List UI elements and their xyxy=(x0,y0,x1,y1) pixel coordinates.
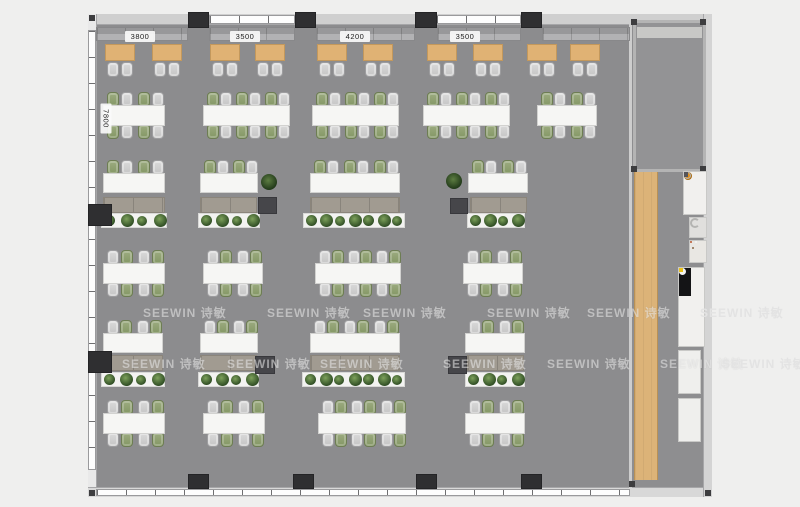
chair xyxy=(257,62,269,77)
floor-plant xyxy=(261,174,277,190)
chair xyxy=(360,282,372,297)
coffee-machine xyxy=(689,240,707,263)
desk-table xyxy=(203,105,290,126)
chair xyxy=(348,282,360,297)
chair xyxy=(489,62,501,77)
chair xyxy=(335,432,347,447)
chair xyxy=(138,124,150,139)
booth-table xyxy=(210,44,240,61)
desk-table xyxy=(318,413,406,434)
chair xyxy=(207,124,219,139)
chair xyxy=(427,124,439,139)
plant xyxy=(363,215,374,226)
chair xyxy=(440,124,452,139)
structural-pillar xyxy=(295,12,316,28)
watermark: SEEWIN 诗敏 xyxy=(487,306,571,320)
desk-table xyxy=(463,263,523,284)
chair xyxy=(322,432,334,447)
basin-icon xyxy=(690,218,700,228)
chair xyxy=(329,124,341,139)
plant xyxy=(154,214,167,227)
desk-table xyxy=(200,333,258,353)
plant xyxy=(378,373,391,386)
plant xyxy=(120,373,133,386)
plant xyxy=(334,375,344,385)
plant xyxy=(305,374,316,385)
chair xyxy=(469,124,481,139)
plant xyxy=(470,215,481,226)
floorplan-canvas: 38003500420035007800SEEWIN 诗敏SEEWIN 诗敏SE… xyxy=(0,0,800,507)
chair xyxy=(379,62,391,77)
chair xyxy=(237,282,249,297)
structural-pillar xyxy=(88,351,112,373)
storage-cabinet xyxy=(310,197,400,213)
chair xyxy=(152,432,164,447)
chair xyxy=(480,282,492,297)
plant xyxy=(232,216,242,226)
plant xyxy=(306,215,317,226)
plant xyxy=(497,375,507,385)
structural-pillar xyxy=(416,474,437,489)
chair xyxy=(485,124,497,139)
plant xyxy=(216,214,229,227)
booth-table xyxy=(570,44,600,61)
plant xyxy=(320,214,333,227)
structural-pillar xyxy=(188,12,209,28)
plant xyxy=(468,374,479,385)
plant xyxy=(483,373,496,386)
plant xyxy=(335,216,345,226)
plant xyxy=(201,215,212,226)
booth-table xyxy=(152,44,182,61)
chair xyxy=(138,282,150,297)
dimension-label-vertical: 7800 xyxy=(101,104,112,134)
plant xyxy=(484,214,497,227)
chair xyxy=(168,62,180,77)
dimension-label: 4200 xyxy=(340,31,370,42)
furniture-layer: 38003500420035007800SEEWIN 诗敏SEEWIN 诗敏SE… xyxy=(0,0,800,507)
watermark: SEEWIN 诗敏 xyxy=(122,357,206,371)
chair xyxy=(152,124,164,139)
chair xyxy=(221,432,233,447)
structural-pillar xyxy=(88,204,112,226)
plant xyxy=(512,214,525,227)
floor-plant xyxy=(446,173,462,189)
chair xyxy=(207,432,219,447)
chair xyxy=(586,62,598,77)
chair xyxy=(333,62,345,77)
chair xyxy=(121,124,133,139)
storage-cabinet xyxy=(103,197,165,213)
plant xyxy=(137,216,147,226)
chair xyxy=(154,62,166,77)
chair xyxy=(365,62,377,77)
desk-table xyxy=(315,263,401,284)
control-icon xyxy=(684,172,688,177)
chair xyxy=(572,62,584,77)
dimension-label: 3800 xyxy=(125,31,155,42)
chair xyxy=(475,62,487,77)
chair xyxy=(584,124,596,139)
chair xyxy=(250,282,262,297)
booth-table xyxy=(363,44,393,61)
chair xyxy=(121,282,133,297)
chair xyxy=(499,432,511,447)
booth-table xyxy=(473,44,503,61)
desk-table xyxy=(310,173,400,193)
chair xyxy=(220,282,232,297)
watermark: SEEWIN 诗敏 xyxy=(587,306,671,320)
chair xyxy=(429,62,441,77)
chair xyxy=(351,432,363,447)
chair xyxy=(364,432,376,447)
structural-pillar xyxy=(415,12,437,28)
chair xyxy=(271,62,283,77)
chair xyxy=(226,62,238,77)
plant xyxy=(104,374,115,385)
wood-floor-strip xyxy=(634,172,658,480)
desk-table xyxy=(103,413,165,434)
chair xyxy=(469,432,481,447)
chair xyxy=(498,124,510,139)
watermark: SEEWIN 诗敏 xyxy=(267,306,351,320)
pantry-sink xyxy=(689,217,707,238)
plant xyxy=(216,373,229,386)
chair xyxy=(571,124,583,139)
chair xyxy=(510,282,522,297)
chair xyxy=(252,432,264,447)
chair xyxy=(121,62,133,77)
chair xyxy=(316,124,328,139)
desk-table xyxy=(103,105,165,126)
plant xyxy=(512,373,525,386)
storage-box xyxy=(450,198,468,214)
chair xyxy=(207,282,219,297)
storage-cabinet xyxy=(200,197,257,213)
chair xyxy=(374,124,386,139)
chair xyxy=(497,282,509,297)
storage-box xyxy=(258,197,277,214)
chair xyxy=(443,62,455,77)
desk-table xyxy=(312,105,399,126)
desk-table xyxy=(465,413,525,434)
pantry-cabinet xyxy=(678,398,701,442)
chair xyxy=(249,124,261,139)
plant xyxy=(201,374,212,385)
watermark: SEEWIN 诗敏 xyxy=(143,306,227,320)
chair xyxy=(387,124,399,139)
booth-table xyxy=(105,44,135,61)
chair xyxy=(212,62,224,77)
chair xyxy=(394,432,406,447)
chair xyxy=(278,124,290,139)
chair xyxy=(381,432,393,447)
plant xyxy=(349,373,362,386)
desk-table xyxy=(537,105,597,126)
chair xyxy=(529,62,541,77)
button-dots-icon xyxy=(690,241,692,243)
desk-table xyxy=(423,105,510,126)
chair xyxy=(358,124,370,139)
desk-table xyxy=(103,333,163,353)
desk-table xyxy=(103,263,165,284)
chair xyxy=(541,124,553,139)
plant xyxy=(363,374,374,385)
bench-sofa xyxy=(542,27,630,41)
chair xyxy=(220,124,232,139)
booth-table xyxy=(427,44,457,61)
chair xyxy=(236,124,248,139)
watermark: SEEWIN 诗敏 xyxy=(722,357,800,371)
plant xyxy=(378,214,391,227)
watermark: SEEWIN 诗敏 xyxy=(363,306,447,320)
desk-table xyxy=(200,173,258,193)
plant xyxy=(392,216,402,226)
chair xyxy=(345,124,357,139)
chair xyxy=(543,62,555,77)
plant xyxy=(498,216,508,226)
desk-table xyxy=(310,333,400,353)
desk-table xyxy=(203,263,263,284)
plant xyxy=(152,373,165,386)
booth-table xyxy=(255,44,285,61)
storage-cabinet xyxy=(470,197,527,213)
structural-pillar xyxy=(188,474,209,489)
watermark: SEEWIN 诗敏 xyxy=(700,306,784,320)
plant xyxy=(392,375,402,385)
chair xyxy=(152,282,164,297)
plant xyxy=(121,214,134,227)
plant xyxy=(246,373,259,386)
watermark: SEEWIN 诗敏 xyxy=(443,357,527,371)
chair xyxy=(376,282,388,297)
plant xyxy=(231,375,241,385)
chair xyxy=(332,282,344,297)
chair xyxy=(456,124,468,139)
chair xyxy=(512,432,524,447)
chair xyxy=(319,282,331,297)
chair xyxy=(482,432,494,447)
desk-table xyxy=(465,333,525,353)
booth-table xyxy=(317,44,347,61)
knob-icon xyxy=(679,268,683,272)
chair xyxy=(554,124,566,139)
chair xyxy=(265,124,277,139)
desk-table xyxy=(468,173,528,193)
dimension-label: 3500 xyxy=(450,31,480,42)
watermark: SEEWIN 诗敏 xyxy=(227,357,311,371)
structural-pillar xyxy=(293,474,314,489)
chair xyxy=(138,432,150,447)
chair xyxy=(389,282,401,297)
watermark: SEEWIN 诗敏 xyxy=(547,357,631,371)
chair xyxy=(107,282,119,297)
plant xyxy=(349,214,362,227)
chair xyxy=(319,62,331,77)
plant xyxy=(247,214,260,227)
stove xyxy=(679,268,691,296)
chair xyxy=(107,62,119,77)
watermark: SEEWIN 诗敏 xyxy=(320,357,404,371)
chair xyxy=(238,432,250,447)
desk-table xyxy=(203,413,265,434)
plant xyxy=(320,373,333,386)
chair xyxy=(467,282,479,297)
desk-table xyxy=(103,173,165,193)
dimension-label: 3500 xyxy=(230,31,260,42)
booth-table xyxy=(527,44,557,61)
plant xyxy=(136,375,146,385)
water-dispenser xyxy=(683,171,707,215)
structural-pillar xyxy=(521,12,542,28)
chair xyxy=(107,432,119,447)
structural-pillar xyxy=(521,474,542,489)
chair xyxy=(121,432,133,447)
